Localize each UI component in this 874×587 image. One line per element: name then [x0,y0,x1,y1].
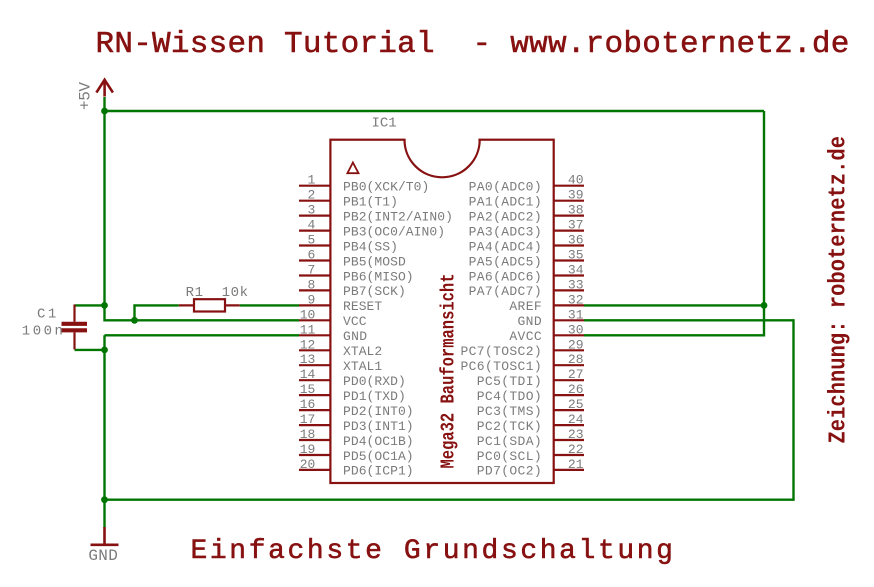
svg-text:PA6(ADC6): PA6(ADC6) [469,269,542,284]
svg-text:PC6(TOSC1): PC6(TOSC1) [460,359,542,374]
svg-text:1: 1 [307,173,315,188]
svg-text:28: 28 [568,352,584,367]
svg-text:20: 20 [300,457,316,472]
svg-text:29: 29 [568,337,584,352]
svg-text:12: 12 [300,337,316,352]
svg-text:PC1(SDA): PC1(SDA) [477,434,542,449]
svg-text:PA7(ADC7): PA7(ADC7) [469,284,542,299]
svg-text:PD4(OC1B): PD4(OC1B) [343,434,414,449]
svg-text:RN-Wissen Tutorial - www.robo: RN-Wissen Tutorial - www.roboternetz.de [96,27,850,62]
svg-text:Zeichnung: roboternetz.de: Zeichnung: roboternetz.de [826,136,853,444]
svg-text:PA0(ADC0): PA0(ADC0) [469,180,542,195]
svg-text:19: 19 [300,442,316,457]
svg-text:IC1: IC1 [372,116,397,132]
svg-text:39: 39 [568,188,584,203]
svg-text:PC7(TOSC2): PC7(TOSC2) [460,344,542,359]
svg-text:VCC: VCC [343,314,367,329]
svg-text:27: 27 [568,367,584,382]
svg-text:PB1(T1): PB1(T1) [343,195,398,210]
svg-text:PB3(OC0/AIN0): PB3(OC0/AIN0) [343,224,445,239]
svg-text:C1: C1 [37,307,59,323]
svg-text:PB4(SS): PB4(SS) [343,239,398,254]
svg-text:PC0(SCL): PC0(SCL) [477,449,542,464]
svg-text:3: 3 [307,203,315,218]
svg-text:11: 11 [300,322,316,337]
svg-text:100n: 100n [22,324,66,340]
svg-text:PC2(TCK): PC2(TCK) [477,419,542,434]
svg-text:31: 31 [568,307,584,322]
svg-text:23: 23 [568,427,584,442]
svg-text:AREF: AREF [509,299,542,314]
svg-text:PB2(INT2/AIN0): PB2(INT2/AIN0) [343,209,453,224]
svg-text:34: 34 [568,263,584,278]
svg-text:18: 18 [300,427,316,442]
svg-text:13: 13 [300,352,316,367]
svg-text:16: 16 [300,397,316,412]
svg-text:6: 6 [307,248,315,263]
svg-text:15: 15 [300,382,316,397]
svg-text:GND: GND [518,314,542,329]
svg-text:PB0(XCK/T0): PB0(XCK/T0) [343,180,429,195]
svg-text:8: 8 [307,277,315,292]
svg-text:PD3(INT1): PD3(INT1) [343,419,414,434]
svg-text:9: 9 [307,292,315,307]
svg-text:PD1(TXD): PD1(TXD) [343,389,406,404]
svg-text:26: 26 [568,382,584,397]
svg-text:XTAL2: XTAL2 [343,344,382,359]
svg-text:PD0(RXD): PD0(RXD) [343,374,406,389]
svg-text:PA3(ADC3): PA3(ADC3) [469,224,542,239]
svg-text:+5V: +5V [76,82,94,110]
svg-text:Mega32 Bauformansicht: Mega32 Bauformansicht [438,274,460,469]
svg-text:GND: GND [343,329,367,344]
svg-text:PB7(SCK): PB7(SCK) [343,284,406,299]
svg-text:PD5(OC1A): PD5(OC1A) [343,449,414,464]
svg-text:17: 17 [300,412,316,427]
svg-text:Einfachste Grundschaltung: Einfachste Grundschaltung [191,536,676,567]
svg-text:PD6(ICP1): PD6(ICP1) [343,464,414,479]
svg-text:PC5(TDI): PC5(TDI) [477,374,542,389]
svg-text:14: 14 [300,367,316,382]
svg-text:4: 4 [307,218,315,233]
svg-text:7: 7 [307,263,315,278]
svg-text:PA5(ADC5): PA5(ADC5) [469,254,542,269]
svg-text:22: 22 [568,442,584,457]
svg-text:PB6(MISO): PB6(MISO) [343,269,414,284]
svg-text:2: 2 [307,188,315,203]
svg-text:XTAL1: XTAL1 [343,359,382,374]
svg-text:35: 35 [568,248,584,263]
svg-text:AVCC: AVCC [509,329,542,344]
svg-text:21: 21 [568,457,584,472]
svg-text:36: 36 [568,233,584,248]
svg-text:PC4(TDO): PC4(TDO) [477,389,542,404]
svg-text:PB5(MOSD: PB5(MOSD [343,254,406,269]
svg-text:33: 33 [568,277,584,292]
svg-text:PD2(INT0): PD2(INT0) [343,404,414,419]
svg-text:32: 32 [568,292,584,307]
svg-text:PA2(ADC2): PA2(ADC2) [469,209,542,224]
svg-text:PD7(OC2): PD7(OC2) [477,464,542,479]
svg-text:PA1(ADC1): PA1(ADC1) [469,195,542,210]
svg-text:R1 10k: R1 10k [186,285,249,301]
svg-text:24: 24 [568,412,584,427]
svg-text:5: 5 [307,233,315,248]
svg-text:PC3(TMS): PC3(TMS) [477,404,542,419]
svg-text:RESET: RESET [343,299,382,314]
svg-text:37: 37 [568,218,584,233]
svg-text:GND: GND [88,547,118,565]
svg-text:10: 10 [300,307,316,322]
svg-text:30: 30 [568,322,584,337]
svg-text:25: 25 [568,397,584,412]
svg-text:38: 38 [568,203,584,218]
svg-text:40: 40 [568,173,584,188]
svg-text:PA4(ADC4): PA4(ADC4) [469,239,542,254]
